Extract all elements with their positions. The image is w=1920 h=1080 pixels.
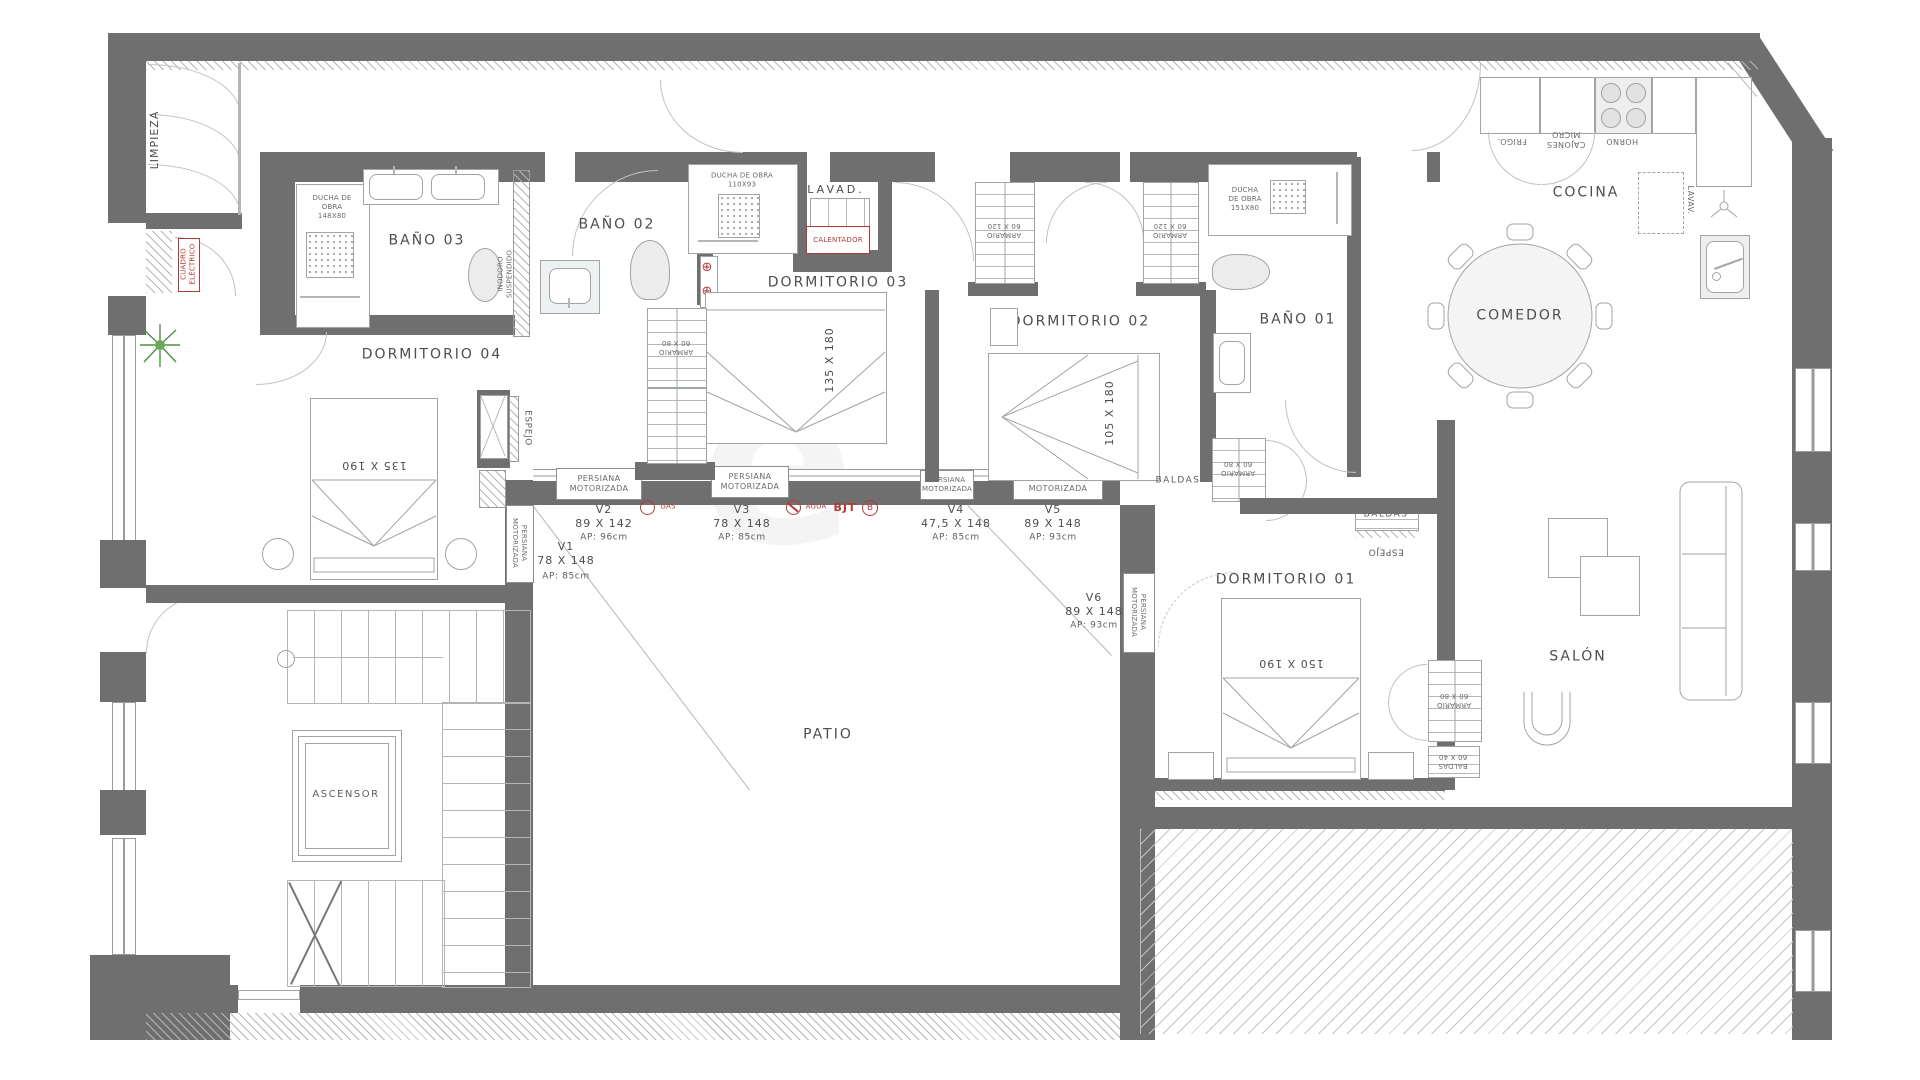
room-label-bano03: BAÑO 03 bbox=[389, 232, 466, 250]
v1-size: 78 X 148 bbox=[537, 554, 595, 568]
dorm04-balcony-arc bbox=[146, 596, 203, 653]
room-label-salon: SALÓN bbox=[1549, 648, 1607, 666]
window-left-3 bbox=[112, 838, 136, 955]
dishwasher-dashed bbox=[1638, 172, 1684, 234]
gas-icon bbox=[640, 500, 655, 515]
extractor-icon bbox=[1706, 188, 1742, 224]
v1-ap: AP: 85cm bbox=[542, 571, 589, 582]
toilet-bano02 bbox=[630, 240, 670, 300]
shower-bano01-grid bbox=[1270, 180, 1306, 214]
wall-bano03-left bbox=[260, 182, 295, 332]
stairs-right-flight bbox=[442, 702, 531, 988]
shower-bano02-label: DUCHA DE OBRA 110X93 bbox=[711, 171, 773, 189]
bed-label-135x190: 135 X 190 bbox=[341, 458, 407, 472]
coffee-table-2 bbox=[1580, 556, 1640, 616]
bed-dormitorio01 bbox=[1221, 598, 1361, 780]
hatch-top bbox=[146, 61, 1758, 70]
entry-door-leaf bbox=[238, 990, 300, 1000]
limpieza-door-panel bbox=[238, 63, 241, 215]
wall-bottom-mid bbox=[300, 985, 1150, 1013]
room-label-limpieza: LIMPIEZA bbox=[148, 111, 162, 170]
kitchen-fridge bbox=[1480, 77, 1540, 134]
bed-dormitorio03 bbox=[705, 292, 887, 444]
baldas-60x40-label: BALDAS 60 X 40 bbox=[1438, 752, 1467, 770]
espejo-left-label: ESPEJO bbox=[521, 410, 532, 446]
stove-burner-1 bbox=[1601, 83, 1621, 103]
shower-bano02-grid bbox=[718, 194, 760, 238]
wall-limpieza-bottom bbox=[146, 213, 242, 229]
closet-dorm03-2 bbox=[647, 388, 707, 464]
kitchen-cabinet-2 bbox=[1652, 77, 1696, 134]
window-right-2 bbox=[1795, 523, 1831, 571]
baldas-top-label: BALDAS bbox=[1156, 475, 1201, 486]
kitchen-sink-basin bbox=[1706, 241, 1744, 293]
wall-salon-bottom bbox=[1130, 807, 1795, 829]
v1-name: V1 bbox=[558, 540, 575, 554]
stairs-start-circle bbox=[277, 650, 295, 668]
wall-left-top bbox=[108, 33, 146, 223]
persiana-label-v6: PERSIANA MOTORIZADA bbox=[1129, 587, 1147, 637]
agua-label: AGUA bbox=[806, 503, 827, 512]
wall-dorm01-top bbox=[1240, 498, 1440, 514]
toilet-bano01 bbox=[1212, 254, 1270, 290]
dorm02-entry-arc-2 bbox=[1085, 182, 1144, 241]
v2-ap: AP: 96cm bbox=[580, 532, 627, 543]
bed-label-105x180: 105 X 180 bbox=[1103, 380, 1117, 446]
v3-ap: AP: 85cm bbox=[718, 532, 765, 543]
bed-dormitorio04 bbox=[310, 398, 438, 580]
persiana-box-v2: PERSIANA MOTORIZADA bbox=[556, 468, 642, 500]
persiana-label-v1: PERSIANA MOTORIZADA bbox=[510, 518, 528, 568]
wall-dorm04-bottom bbox=[146, 585, 510, 603]
closet-dorm01-label: ARMARIO 60 X 80 bbox=[1437, 691, 1471, 709]
floor-plan-canvas: e PERSIANA MOTORIZADA PERSIANA MOTORIZAD… bbox=[0, 0, 1920, 1080]
wall-closetA-bottom bbox=[968, 282, 1038, 296]
kitchen-fridge-label: FRIGO. bbox=[1497, 136, 1527, 146]
sink-bano02-basin bbox=[549, 268, 591, 304]
hatch-dorm01-bottom bbox=[1155, 791, 1445, 800]
window-right-3 bbox=[1795, 702, 1831, 764]
limpieza-door-arc-1 bbox=[148, 64, 241, 115]
closet-top-60x80-label: ARMARIO 60 X 80 bbox=[1221, 459, 1255, 477]
v6-size: 89 X 148 bbox=[1065, 605, 1123, 619]
lavavajillas-label: LAVAV. bbox=[1685, 186, 1695, 215]
outlet-icon-1: ⊕ bbox=[702, 260, 715, 276]
v2-name: V2 bbox=[596, 503, 613, 517]
wall-bano03-right-hatch bbox=[513, 170, 530, 337]
room-label-dormitorio01: DORMITORIO 01 bbox=[1216, 571, 1356, 589]
bedside-dorm02 bbox=[990, 308, 1018, 346]
plant-icon bbox=[136, 320, 184, 370]
wall-band-seg4 bbox=[1010, 152, 1120, 182]
v4-ap: AP: 85cm bbox=[932, 532, 979, 543]
closet-60x120-a-label: ARMARIO 60 X 120 bbox=[987, 221, 1021, 239]
persiana-label-v3: PERSIANA MOTORIZADA bbox=[721, 472, 780, 492]
gas-label: GAS bbox=[660, 503, 675, 512]
wall-top bbox=[108, 33, 1760, 61]
stairs-bottom-flight bbox=[287, 880, 445, 987]
v5-size: 89 X 148 bbox=[1024, 517, 1082, 531]
v4-name: V4 bbox=[948, 503, 965, 517]
espejo-right-label: ESPEJO bbox=[1368, 545, 1404, 556]
persiana-label-v2: PERSIANA MOTORIZADA bbox=[570, 474, 629, 494]
limpieza-door-arc-3 bbox=[148, 164, 241, 215]
terrace-hatch bbox=[1140, 829, 1793, 1034]
shower-bano01-label: DUCHA DE OBRA 151X80 bbox=[1228, 186, 1261, 212]
room-label-dormitorio04: DORMITORIO 04 bbox=[362, 346, 502, 364]
sofa-salon bbox=[1678, 480, 1756, 702]
stairs-start-line bbox=[293, 657, 443, 658]
tap-bano02 bbox=[568, 298, 570, 308]
wall-lavad-right bbox=[878, 152, 892, 262]
wall-left-chunk-b bbox=[100, 652, 146, 702]
limpieza-door-arc-2 bbox=[148, 114, 241, 165]
tap-bano03-2 bbox=[455, 166, 457, 174]
sink-bano03-1 bbox=[369, 174, 423, 200]
stove-burner-4 bbox=[1626, 108, 1646, 128]
kitchen-sink-drain bbox=[1712, 272, 1721, 281]
window-right-4 bbox=[1795, 930, 1831, 992]
closet-dorm01-arc-2 bbox=[1388, 702, 1427, 741]
wall-dorm03-dorm02 bbox=[925, 290, 939, 482]
bedside-dorm01-right bbox=[1368, 752, 1414, 780]
wall-dorm01-right-a bbox=[1437, 420, 1455, 662]
v3-name: V3 bbox=[734, 503, 751, 517]
wall-right bbox=[1792, 138, 1832, 1040]
sink-bano01-basin bbox=[1219, 341, 1245, 385]
wall-closet-dorm03-bottom bbox=[635, 462, 715, 480]
bjt-circle-letter: B bbox=[867, 503, 873, 513]
room-label-bano01: BAÑO 01 bbox=[1260, 311, 1337, 329]
bedside-dorm01-left bbox=[1168, 752, 1214, 780]
bed-dormitorio02 bbox=[988, 353, 1160, 481]
v5-name: V5 bbox=[1045, 503, 1062, 517]
stove-burner-2 bbox=[1626, 83, 1646, 103]
persiana-box-v3: PERSIANA MOTORIZADA bbox=[711, 466, 789, 498]
room-label-comedor: COMEDOR bbox=[1476, 307, 1563, 325]
hatch-below-espejo bbox=[479, 470, 506, 508]
wall-left-chunk-c bbox=[100, 790, 146, 835]
bedside-dorm04-left bbox=[262, 538, 294, 570]
inodoro-label: INODORO SUSPENDIDO bbox=[496, 250, 514, 298]
sink-bano03-2 bbox=[431, 174, 485, 200]
tap-bano03-1 bbox=[393, 166, 395, 174]
cocina-corridor-door-arc bbox=[1412, 64, 1481, 151]
dorm03-entry-arc bbox=[895, 182, 974, 261]
shower-bano03-grid bbox=[306, 232, 354, 278]
closet-dorm03-label: ARMARIO 60 X 80 bbox=[659, 338, 693, 356]
espejo-closet-x bbox=[480, 395, 506, 457]
stove-burner-3 bbox=[1601, 108, 1621, 128]
kitchen-corner-cabinet bbox=[1696, 77, 1752, 187]
shower-bano02-bar bbox=[698, 240, 758, 242]
bjt-circle-icon: B bbox=[862, 500, 878, 516]
v6-name: V6 bbox=[1086, 591, 1103, 605]
hatch-bottom bbox=[146, 1013, 1150, 1040]
bed-label-150x190: 150 X 190 bbox=[1258, 656, 1324, 670]
lavad-door-arc bbox=[660, 80, 743, 153]
wall-band-seg7 bbox=[1427, 152, 1440, 182]
kitchen-cabinet-1 bbox=[1540, 77, 1595, 134]
dorm04-entry-arc bbox=[256, 332, 327, 385]
v3-size: 78 X 148 bbox=[713, 517, 771, 531]
espejo-right-hatch bbox=[1355, 531, 1417, 538]
room-label-lavadero: LAVAD. bbox=[807, 183, 865, 197]
cuadro-electrico-label: CUADRO ELÉCTRICO bbox=[179, 243, 197, 284]
bedside-dorm04-right bbox=[445, 538, 477, 570]
room-label-dormitorio02: DORMITORIO 02 bbox=[1010, 313, 1150, 331]
hatch-cuadro bbox=[146, 231, 172, 293]
closet-dorm01-arc-1 bbox=[1388, 664, 1427, 703]
shower-bano03-label: DUCHA DE OBRA 148X80 bbox=[312, 194, 351, 220]
room-label-bano02: BAÑO 02 bbox=[579, 216, 656, 234]
shower-bano03-bar bbox=[300, 296, 360, 298]
bjt-label: BJT bbox=[834, 501, 857, 515]
window-right-1 bbox=[1795, 368, 1831, 452]
closet-60x120-b-label: ARMARIO 60 X 120 bbox=[1153, 221, 1187, 239]
wall-closetB-bottom bbox=[1136, 282, 1206, 296]
shower-bano01-bar bbox=[1336, 172, 1338, 224]
v6-ap: AP: 93cm bbox=[1070, 620, 1117, 631]
calentador-box: CALENTADOR bbox=[806, 226, 870, 254]
armchair-salon bbox=[1512, 688, 1582, 754]
v2-size: 89 X 142 bbox=[575, 517, 633, 531]
room-label-patio: PATIO bbox=[803, 726, 853, 744]
calentador-label: CALENTADOR bbox=[813, 236, 863, 244]
espejo-left-hatch bbox=[509, 396, 519, 462]
bed-label-135x180: 135 X 180 bbox=[823, 327, 837, 393]
v4-size: 47,5 X 148 bbox=[921, 517, 991, 531]
kitchen-cajones-micro-label: CAJONES MICRO bbox=[1547, 129, 1586, 149]
wall-bottom-left bbox=[146, 985, 238, 1013]
room-label-ascensor: ASCENSOR bbox=[312, 789, 379, 802]
window-left-2 bbox=[112, 702, 136, 792]
room-label-dormitorio03: DORMITORIO 03 bbox=[768, 274, 908, 292]
wall-left-chunk-a bbox=[100, 540, 146, 588]
window-left-1 bbox=[112, 335, 136, 542]
kitchen-horno-label: HORNO bbox=[1606, 136, 1638, 146]
room-label-cocina: COCINA bbox=[1553, 184, 1620, 202]
v5-ap: AP: 93cm bbox=[1029, 532, 1076, 543]
